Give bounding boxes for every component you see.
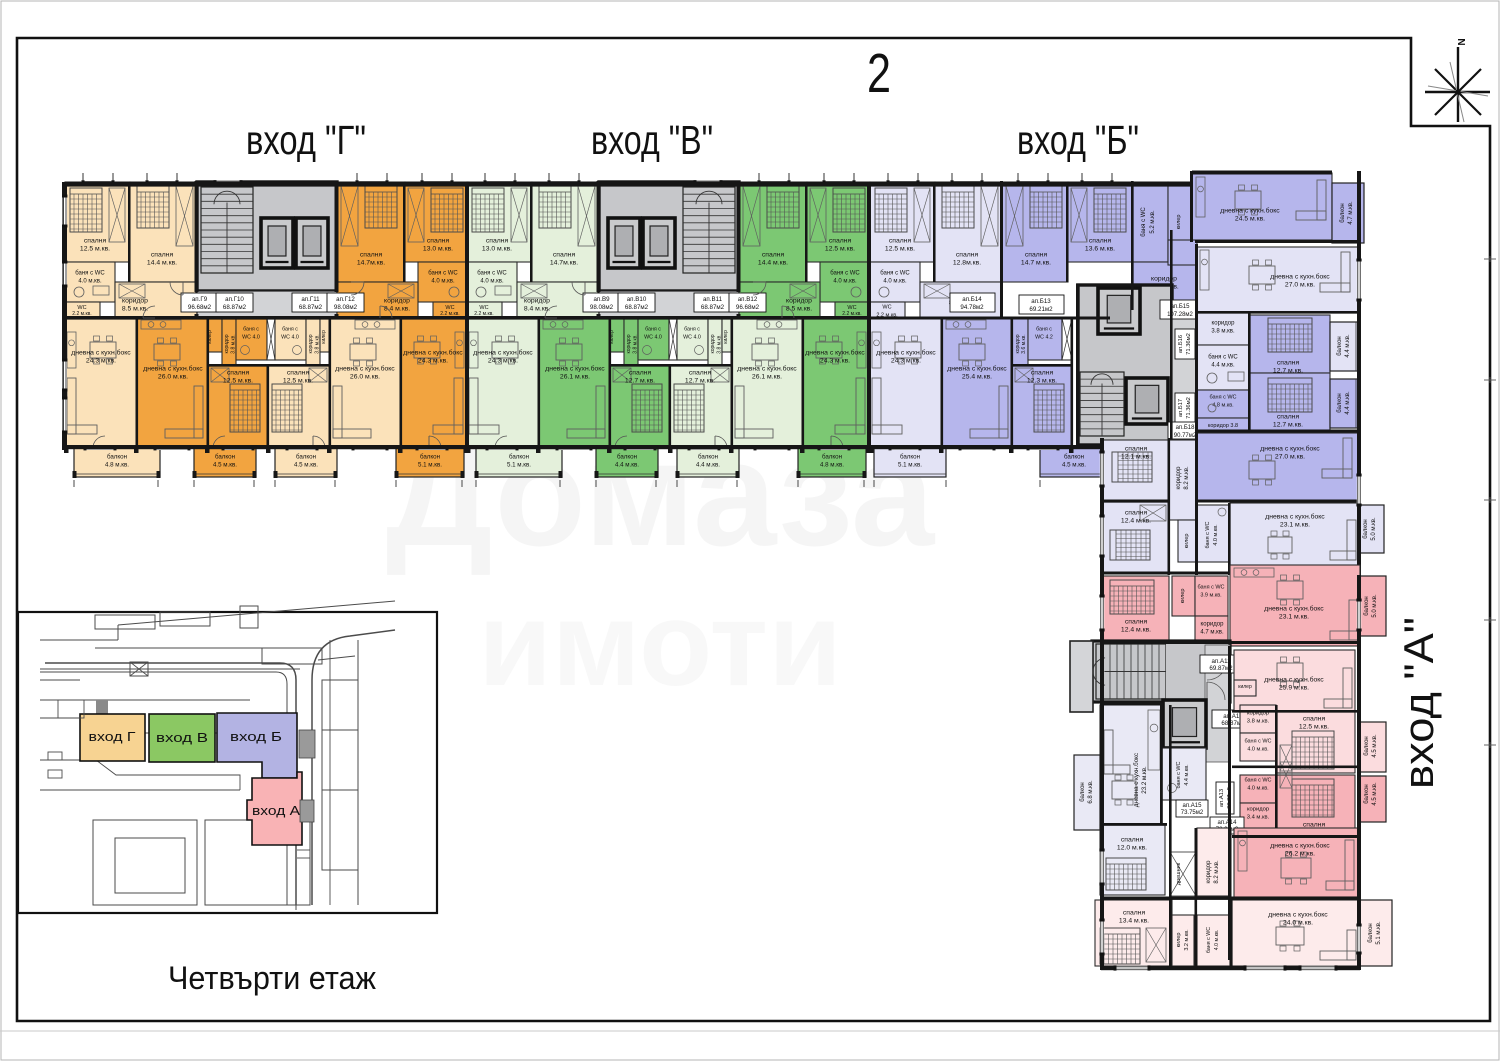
svg-text:ап.Г9: ап.Г9 xyxy=(192,296,208,303)
svg-text:ап.В12: ап.В12 xyxy=(738,296,758,303)
svg-text:балкон: балкон xyxy=(420,454,440,461)
svg-text:балкон: балкон xyxy=(698,454,718,461)
svg-text:14.4 м.кв.: 14.4 м.кв. xyxy=(758,260,788,267)
svg-text:24.3 м.кв.: 24.3 м.кв. xyxy=(891,358,921,365)
svg-text:коридор: коридор xyxy=(224,334,230,353)
svg-text:баня с WC: баня с WC xyxy=(880,271,910,277)
svg-text:баня с WC: баня с WC xyxy=(1244,778,1271,784)
svg-text:8.4 м.кв.: 8.4 м.кв. xyxy=(524,306,550,313)
svg-text:имоти: имоти xyxy=(478,577,842,711)
svg-text:коридор: коридор xyxy=(626,334,632,353)
svg-text:12.1 м.кв.: 12.1 м.кв. xyxy=(1121,454,1151,461)
svg-text:спалня: спалня xyxy=(151,252,174,259)
svg-text:4.5 м.кв.: 4.5 м.кв. xyxy=(1062,462,1086,469)
svg-text:ап.В10: ап.В10 xyxy=(627,296,647,303)
svg-text:4.8 м.кв.: 4.8 м.кв. xyxy=(820,462,844,469)
svg-text:5.1 м.кв.: 5.1 м.кв. xyxy=(507,462,531,469)
svg-text:спалня: спалня xyxy=(84,238,107,245)
svg-text:3.6 м.кв.: 3.6 м.кв. xyxy=(1021,334,1027,353)
svg-text:коридор: коридор xyxy=(308,334,314,353)
svg-text:N: N xyxy=(1455,38,1466,45)
svg-text:12.5 м.кв.: 12.5 м.кв. xyxy=(825,246,855,253)
svg-text:вход "Г": вход "Г" xyxy=(246,117,366,163)
svg-text:баня с: баня с xyxy=(645,327,661,333)
svg-text:спалня: спалня xyxy=(829,238,852,245)
svg-text:ап.А15: ап.А15 xyxy=(1183,803,1203,809)
svg-text:спалня: спалня xyxy=(1125,446,1148,453)
svg-text:3.9 м.кв.: 3.9 м.кв. xyxy=(1200,593,1222,599)
svg-text:спалня: спалня xyxy=(689,370,712,377)
svg-text:14.7 м.кв.: 14.7 м.кв. xyxy=(1021,260,1051,267)
svg-text:71.36м2: 71.36м2 xyxy=(1186,333,1192,355)
svg-text:ап.Б16: ап.Б16 xyxy=(1178,335,1184,353)
svg-text:12.7 м.кв.: 12.7 м.кв. xyxy=(685,378,715,385)
svg-text:4.4 м.кв.: 4.4 м.кв. xyxy=(615,462,639,469)
svg-text:4.5 м.кв.: 4.5 м.кв. xyxy=(294,462,318,469)
svg-text:5.2 м.кв.: 5.2 м.кв. xyxy=(1150,210,1156,234)
svg-text:дневна с кухн.бокс: дневна с кухн.бокс xyxy=(876,349,936,357)
svg-text:балкон: балкон xyxy=(1337,393,1343,412)
svg-text:дневна с кухн.бокс: дневна с кухн.бокс xyxy=(143,365,203,373)
svg-text:коридор: коридор xyxy=(786,298,812,305)
svg-text:WC 4.0: WC 4.0 xyxy=(281,335,299,341)
svg-text:98.08м2: 98.08м2 xyxy=(334,304,358,311)
svg-text:98.08м2: 98.08м2 xyxy=(590,304,614,311)
svg-text:балкон: балкон xyxy=(900,454,920,461)
svg-text:23.2 м.кв.: 23.2 м.кв. xyxy=(1141,766,1148,794)
svg-text:дневна с кухн.бокс: дневна с кухн.бокс xyxy=(737,365,797,373)
svg-text:баня с WC: баня с WC xyxy=(1205,521,1211,548)
svg-text:баня с WC: баня с WC xyxy=(1141,207,1147,237)
svg-text:14.4 м.кв.: 14.4 м.кв. xyxy=(147,260,177,267)
svg-text:4.8 м.кв.: 4.8 м.кв. xyxy=(105,462,129,469)
svg-text:ап.Б15: ап.Б15 xyxy=(1171,304,1191,310)
svg-text:12.5 м.кв.: 12.5 м.кв. xyxy=(80,246,110,253)
svg-text:вход Г: вход Г xyxy=(89,729,136,744)
svg-text:балкон: балкон xyxy=(215,454,235,461)
svg-text:балкон: балкон xyxy=(509,454,529,461)
svg-text:12.5 м.кв.: 12.5 м.кв. xyxy=(1299,724,1329,731)
svg-text:баня с: баня с xyxy=(243,327,259,333)
svg-text:коридор: коридор xyxy=(1206,860,1212,884)
svg-text:ап.Г10: ап.Г10 xyxy=(225,296,244,303)
svg-text:спалня: спалня xyxy=(1277,414,1300,421)
svg-text:коридор: коридор xyxy=(524,298,550,305)
svg-text:4.7 м.кв.: 4.7 м.кв. xyxy=(1348,201,1354,225)
svg-text:4.0 м.кв.: 4.0 м.кв. xyxy=(480,279,504,285)
svg-text:68.87м2: 68.87м2 xyxy=(701,304,725,311)
svg-text:3.8 м.кв.: 3.8 м.кв. xyxy=(1211,329,1235,335)
svg-text:коридор: коридор xyxy=(384,298,410,305)
svg-text:спалня: спалня xyxy=(762,252,785,259)
svg-text:8.5 м.кв.: 8.5 м.кв. xyxy=(122,306,148,313)
svg-text:6.8 м.кв.: 6.8 м.кв. xyxy=(1088,780,1094,804)
svg-text:спалня: спалня xyxy=(486,238,509,245)
svg-text:12.4 м.кв.: 12.4 м.кв. xyxy=(1121,627,1151,634)
svg-text:ап.В9: ап.В9 xyxy=(593,296,610,303)
svg-text:WC 4.0: WC 4.0 xyxy=(242,335,260,341)
svg-text:спалня: спалня xyxy=(1025,252,1048,259)
svg-text:4.0 м.кв.: 4.0 м.кв. xyxy=(431,279,455,285)
svg-text:коридор: коридор xyxy=(1176,466,1182,490)
svg-text:спалня: спалня xyxy=(1277,360,1300,367)
svg-text:4.0 м.кв.: 4.0 м.кв. xyxy=(1213,524,1219,546)
svg-text:баня с WC: баня с WC xyxy=(1244,739,1271,745)
svg-text:12.7 м.кв.: 12.7 м.кв. xyxy=(625,378,655,385)
svg-text:спалня: спалня xyxy=(1031,370,1054,377)
svg-text:килер: килер xyxy=(1238,684,1252,690)
svg-text:4.0 м.кв.: 4.0 м.кв. xyxy=(1247,747,1269,753)
svg-text:23.1 м.кв.: 23.1 м.кв. xyxy=(1280,522,1310,529)
svg-text:коридор: коридор xyxy=(1212,321,1236,327)
svg-text:5.1 м.кв.: 5.1 м.кв. xyxy=(418,462,442,469)
svg-text:2: 2 xyxy=(867,42,891,104)
svg-text:5.0 м.кв.: 5.0 м.кв. xyxy=(1372,594,1378,618)
svg-text:5.1 м.кв.: 5.1 м.кв. xyxy=(898,462,922,469)
svg-text:ап.Б17: ап.Б17 xyxy=(1178,399,1184,417)
svg-text:96.68м2: 96.68м2 xyxy=(188,304,212,311)
svg-text:26.0 м.кв.: 26.0 м.кв. xyxy=(350,374,380,381)
svg-text:8.2 м.кв.: 8.2 м.кв. xyxy=(1184,466,1190,490)
svg-text:68.87м2: 68.87м2 xyxy=(625,304,649,311)
svg-text:24.5 м.кв.: 24.5 м.кв. xyxy=(1235,216,1265,223)
svg-text:балкон: балкон xyxy=(1364,736,1370,755)
svg-text:ап.А13: ап.А13 xyxy=(1219,789,1225,807)
svg-text:4.4 м.кв.: 4.4 м.кв. xyxy=(696,462,720,469)
svg-text:дневна с кухн.бокс: дневна с кухн.бокс xyxy=(1220,207,1280,215)
svg-text:5.1 м.кв.: 5.1 м.кв. xyxy=(1376,921,1382,945)
svg-text:4.0 м.кв.: 4.0 м.кв. xyxy=(883,279,907,285)
svg-text:13.0 м.кв.: 13.0 м.кв. xyxy=(482,246,512,253)
svg-text:дневна с кухн.бокс: дневна с кухн.бокс xyxy=(335,365,395,373)
svg-text:баня с WC: баня с WC xyxy=(1208,355,1238,361)
svg-text:3.4 м.кв.: 3.4 м.кв. xyxy=(1247,815,1270,821)
svg-text:килер: килер xyxy=(723,330,729,344)
svg-text:25.4 м.кв.: 25.4 м.кв. xyxy=(962,374,992,381)
svg-text:вход В: вход В xyxy=(156,730,208,745)
svg-text:баня с WC: баня с WC xyxy=(1197,585,1224,591)
svg-text:4.4 м.кв.: 4.4 м.кв. xyxy=(1345,391,1351,415)
svg-text:13.4 м.кв.: 13.4 м.кв. xyxy=(1119,918,1149,925)
svg-text:вход Б: вход Б xyxy=(230,729,282,744)
svg-text:4.0 м.кв.: 4.0 м.кв. xyxy=(1247,786,1269,792)
svg-text:спалня: спалня xyxy=(553,252,576,259)
svg-text:WC: WC xyxy=(882,305,891,311)
svg-text:14.7м.кв.: 14.7м.кв. xyxy=(550,260,578,267)
svg-text:13.6 м.кв.: 13.6 м.кв. xyxy=(1085,246,1115,253)
svg-text:спалня: спалня xyxy=(889,238,912,245)
svg-text:дневна с кухн.бокс: дневна с кухн.бокс xyxy=(1270,842,1330,850)
svg-text:3.2 м.кв.: 3.2 м.кв. xyxy=(1184,929,1190,951)
svg-text:балкон: балкон xyxy=(1340,203,1346,222)
svg-text:спалня: спалня xyxy=(629,370,652,377)
svg-text:дневна с кухн.бокс: дневна с кухн.бокс xyxy=(805,349,865,357)
svg-text:баня с: баня с xyxy=(282,327,298,333)
svg-text:баня с WC: баня с WC xyxy=(75,271,105,277)
svg-text:коридор: коридор xyxy=(710,334,716,353)
svg-text:спалня: спалня xyxy=(1303,716,1326,723)
svg-text:4.4 м.кв.: 4.4 м.кв. xyxy=(1345,334,1351,358)
svg-text:дневна с кухн.бокс: дневна с кухн.бокс xyxy=(1260,445,1320,453)
svg-text:дневна с кухн.бокс: дневна с кухн.бокс xyxy=(403,349,463,357)
svg-text:дневна с кухн.бокс: дневна с кухн.бокс xyxy=(947,365,1007,373)
svg-text:вход "А": вход "А" xyxy=(1395,617,1442,789)
svg-text:12.7 м.кв.: 12.7 м.кв. xyxy=(1273,422,1303,429)
svg-text:баня с WC: баня с WC xyxy=(428,271,458,277)
svg-text:килер: килер xyxy=(1176,933,1182,948)
svg-text:12.0 м.кв.: 12.0 м.кв. xyxy=(1117,845,1147,852)
svg-text:вход "В": вход "В" xyxy=(591,117,713,163)
svg-text:балкон: балкон xyxy=(1364,596,1370,615)
svg-text:4.0 м.кв.: 4.0 м.кв. xyxy=(1214,930,1220,951)
svg-text:балкон: балкон xyxy=(1368,923,1374,942)
svg-text:ап.В11: ап.В11 xyxy=(703,296,723,303)
svg-text:дневна с кухн.бокс: дневна с кухн.бокс xyxy=(1264,605,1324,613)
svg-text:26.0 м.кв.: 26.0 м.кв. xyxy=(158,374,188,381)
svg-text:3.8 м.кв.: 3.8 м.кв. xyxy=(1247,719,1270,725)
svg-text:дневна с кухн.бокс: дневна с кухн.бокс xyxy=(71,349,131,357)
svg-text:балкон: балкон xyxy=(1080,782,1086,801)
svg-text:94.78м2: 94.78м2 xyxy=(960,304,984,311)
svg-text:26.2 м.кв.: 26.2 м.кв. xyxy=(1285,851,1315,858)
svg-text:ап.А14: ап.А14 xyxy=(1218,820,1238,826)
svg-text:спалня: спалня xyxy=(1121,837,1144,844)
svg-text:дрешник: дрешник xyxy=(1176,862,1182,885)
svg-text:WC 4.0: WC 4.0 xyxy=(683,335,701,341)
svg-text:балкон: балкон xyxy=(296,454,316,461)
svg-text:8.2 м.кв.: 8.2 м.кв. xyxy=(1214,860,1220,884)
svg-text:баня с WC: баня с WC xyxy=(477,271,507,277)
svg-text:4.0 м.кв.: 4.0 м.кв. xyxy=(833,279,857,285)
svg-text:73.75м2: 73.75м2 xyxy=(1181,810,1204,816)
svg-text:24.3 м.кв.: 24.3 м.кв. xyxy=(820,358,850,365)
svg-text:спалня: спалня xyxy=(227,370,250,377)
svg-text:коридор: коридор xyxy=(1201,622,1225,628)
svg-text:26.1 м.кв.: 26.1 м.кв. xyxy=(560,374,590,381)
svg-text:24.0 м.кв.: 24.0 м.кв. xyxy=(1283,920,1313,927)
svg-text:баня с WC: баня с WC xyxy=(1206,927,1212,953)
svg-text:14.7м.кв.: 14.7м.кв. xyxy=(357,260,385,267)
svg-text:ап.Б14: ап.Б14 xyxy=(962,296,982,303)
svg-text:баня с: баня с xyxy=(1036,327,1052,333)
svg-text:69.21м2: 69.21м2 xyxy=(1029,306,1053,313)
svg-text:24.3 м.кв.: 24.3 м.кв. xyxy=(86,358,116,365)
svg-text:килер: килер xyxy=(1176,215,1182,230)
svg-text:90.77м2: 90.77м2 xyxy=(1174,433,1197,439)
svg-text:Четвърти етаж: Четвърти етаж xyxy=(168,960,377,996)
svg-text:4.5 м.кв.: 4.5 м.кв. xyxy=(213,462,237,469)
svg-text:баня с: баня с xyxy=(684,327,700,333)
svg-text:4.4 м.кв.: 4.4 м.кв. xyxy=(1211,363,1235,369)
svg-text:балкон: балкон xyxy=(107,454,127,461)
svg-text:12.5 м.кв.: 12.5 м.кв. xyxy=(885,246,915,253)
svg-text:27.0 м.кв.: 27.0 м.кв. xyxy=(1285,282,1315,289)
svg-text:12.8м.кв.: 12.8м.кв. xyxy=(953,260,981,267)
svg-text:балкон: балкон xyxy=(617,454,637,461)
svg-text:4.7 м.кв.: 4.7 м.кв. xyxy=(1200,630,1224,636)
svg-text:68.87м2: 68.87м2 xyxy=(223,304,247,311)
svg-text:дневна с кухн.бокс: дневна с кухн.бокс xyxy=(1268,911,1328,919)
svg-text:4.0 м.кв.: 4.0 м.кв. xyxy=(78,279,102,285)
svg-text:ап.Б18: ап.Б18 xyxy=(1176,425,1196,431)
svg-text:25.9 м.кв.: 25.9 м.кв. xyxy=(1279,685,1309,692)
svg-text:5.0 м.кв.: 5.0 м.кв. xyxy=(1371,517,1377,541)
svg-text:ап.Г12: ап.Г12 xyxy=(336,296,355,303)
svg-text:баня с WC: баня с WC xyxy=(830,271,860,277)
svg-text:дневна с кухн.бокс: дневна с кухн.бокс xyxy=(1264,676,1324,684)
svg-text:дневна с кухн.бокс: дневна с кухн.бокс xyxy=(1270,273,1330,281)
svg-text:ап.Г11: ап.Г11 xyxy=(301,296,320,303)
svg-text:12.4 м.кв.: 12.4 м.кв. xyxy=(1121,518,1151,525)
svg-text:вход "Б": вход "Б" xyxy=(1017,117,1139,163)
svg-text:коридор: коридор xyxy=(122,298,148,305)
svg-text:спалня: спалня xyxy=(1123,910,1146,917)
svg-text:балкон: балкон xyxy=(1337,336,1343,355)
svg-text:27.0 м.кв.: 27.0 м.кв. xyxy=(1275,454,1305,461)
svg-text:коридор: коридор xyxy=(1151,276,1177,283)
svg-text:71.36м2: 71.36м2 xyxy=(1186,397,1192,419)
svg-text:коридор 3.8: коридор 3.8 xyxy=(1208,423,1238,429)
svg-text:баня с WC: баня с WC xyxy=(1176,761,1182,788)
svg-text:4.5 м.кв.: 4.5 м.кв. xyxy=(1372,734,1378,758)
svg-text:дневна с кухн.бокс: дневна с кухн.бокс xyxy=(1133,753,1140,807)
svg-text:балкон: балкон xyxy=(1364,784,1370,803)
svg-text:балкон: балкон xyxy=(1363,519,1369,538)
svg-text:балкон: балкон xyxy=(822,454,842,461)
svg-text:дневна с кухн.бокс: дневна с кухн.бокс xyxy=(545,365,605,373)
svg-text:килер: килер xyxy=(1180,589,1186,604)
svg-text:23.1 м.кв.: 23.1 м.кв. xyxy=(1279,614,1309,621)
svg-text:24.3 м.кв.: 24.3 м.кв. xyxy=(418,358,448,365)
svg-text:68.87м2: 68.87м2 xyxy=(299,304,323,311)
svg-text:коридор: коридор xyxy=(1247,807,1269,813)
svg-text:спалня: спалня xyxy=(1125,510,1148,517)
svg-text:WC 4.2: WC 4.2 xyxy=(1035,335,1053,341)
svg-text:96.68м2: 96.68м2 xyxy=(736,304,760,311)
svg-text:спалня: спалня xyxy=(360,252,383,259)
svg-text:WC 4.0: WC 4.0 xyxy=(644,335,662,341)
svg-text:вход А: вход А xyxy=(252,803,300,818)
svg-text:спалня: спалня xyxy=(427,238,450,245)
svg-text:дневна с кухн.бокс: дневна с кухн.бокс xyxy=(1265,513,1325,521)
svg-text:4.5 м.кв.: 4.5 м.кв. xyxy=(1372,782,1378,806)
svg-text:ап.Б13: ап.Б13 xyxy=(1031,298,1051,305)
svg-text:спалня: спалня xyxy=(1125,619,1148,626)
svg-text:спалня: спалня xyxy=(287,370,310,377)
svg-text:спалня: спалня xyxy=(956,252,979,259)
svg-text:13.0 м.кв.: 13.0 м.кв. xyxy=(423,246,453,253)
svg-text:балкон: балкон xyxy=(1064,454,1084,461)
svg-text:12.3 м.кв.: 12.3 м.кв. xyxy=(1027,378,1057,385)
svg-text:12.5 м.кв.: 12.5 м.кв. xyxy=(223,378,253,385)
svg-text:спалня: спалня xyxy=(1089,238,1112,245)
svg-text:12.5 м.кв.: 12.5 м.кв. xyxy=(283,378,313,385)
svg-text:24.3 м.кв.: 24.3 м.кв. xyxy=(488,358,518,365)
svg-text:килер: килер xyxy=(1184,534,1190,549)
svg-text:килер: килер xyxy=(321,330,327,344)
svg-text:4.4 м.кв.: 4.4 м.кв. xyxy=(1184,764,1190,786)
svg-text:дневна с кухн.бокс: дневна с кухн.бокс xyxy=(473,349,533,357)
svg-text:26.1 м.кв.: 26.1 м.кв. xyxy=(752,374,782,381)
svg-text:баня с WC: баня с WC xyxy=(1209,395,1236,401)
